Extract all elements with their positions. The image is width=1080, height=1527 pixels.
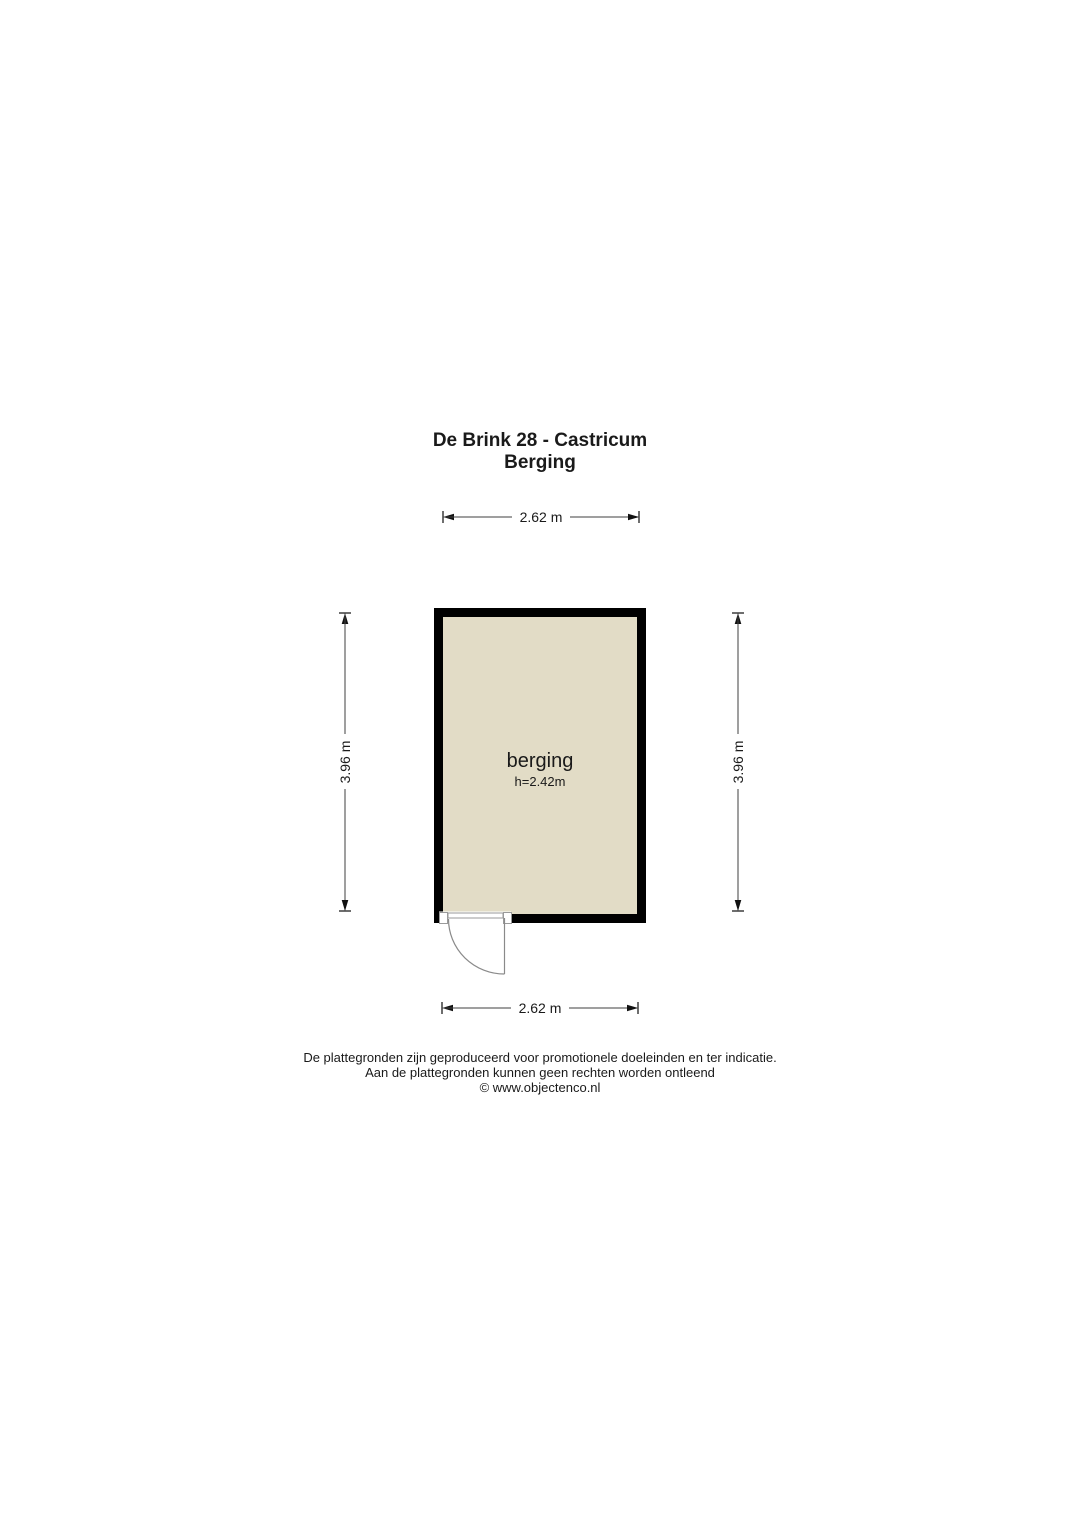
plan-graphics: 2.62 m 2.62 m 3.96 m <box>0 0 1080 1527</box>
dimension-bottom-label: 2.62 m <box>519 1000 562 1016</box>
arrow-down-icon <box>342 900 349 911</box>
dimension-bottom: 2.62 m <box>442 1000 638 1016</box>
dimension-top: 2.62 m <box>443 509 639 525</box>
door <box>439 912 512 975</box>
dimension-left: 3.96 m <box>337 613 353 911</box>
door-swing-arc <box>449 919 505 974</box>
dimension-top-label: 2.62 m <box>520 509 563 525</box>
door-jamb-left <box>440 913 448 924</box>
dimension-left-label: 3.96 m <box>337 741 353 784</box>
arrow-right-icon <box>628 514 639 521</box>
dimension-right: 3.96 m <box>730 613 746 911</box>
arrow-down-icon <box>735 900 742 911</box>
disclaimer-line-2: Aan de plattegronden kunnen geen rechten… <box>0 1065 1080 1080</box>
dimension-right-label: 3.96 m <box>730 741 746 784</box>
floorplan-page: De Brink 28 - Castricum Berging berging … <box>0 0 1080 1527</box>
disclaimer: De plattegronden zijn geproduceerd voor … <box>0 1050 1080 1095</box>
arrow-right-icon <box>627 1005 638 1012</box>
copyright-line: © www.objectenco.nl <box>0 1080 1080 1095</box>
door-threshold <box>448 913 503 918</box>
disclaimer-line-1: De plattegronden zijn geproduceerd voor … <box>0 1050 1080 1065</box>
